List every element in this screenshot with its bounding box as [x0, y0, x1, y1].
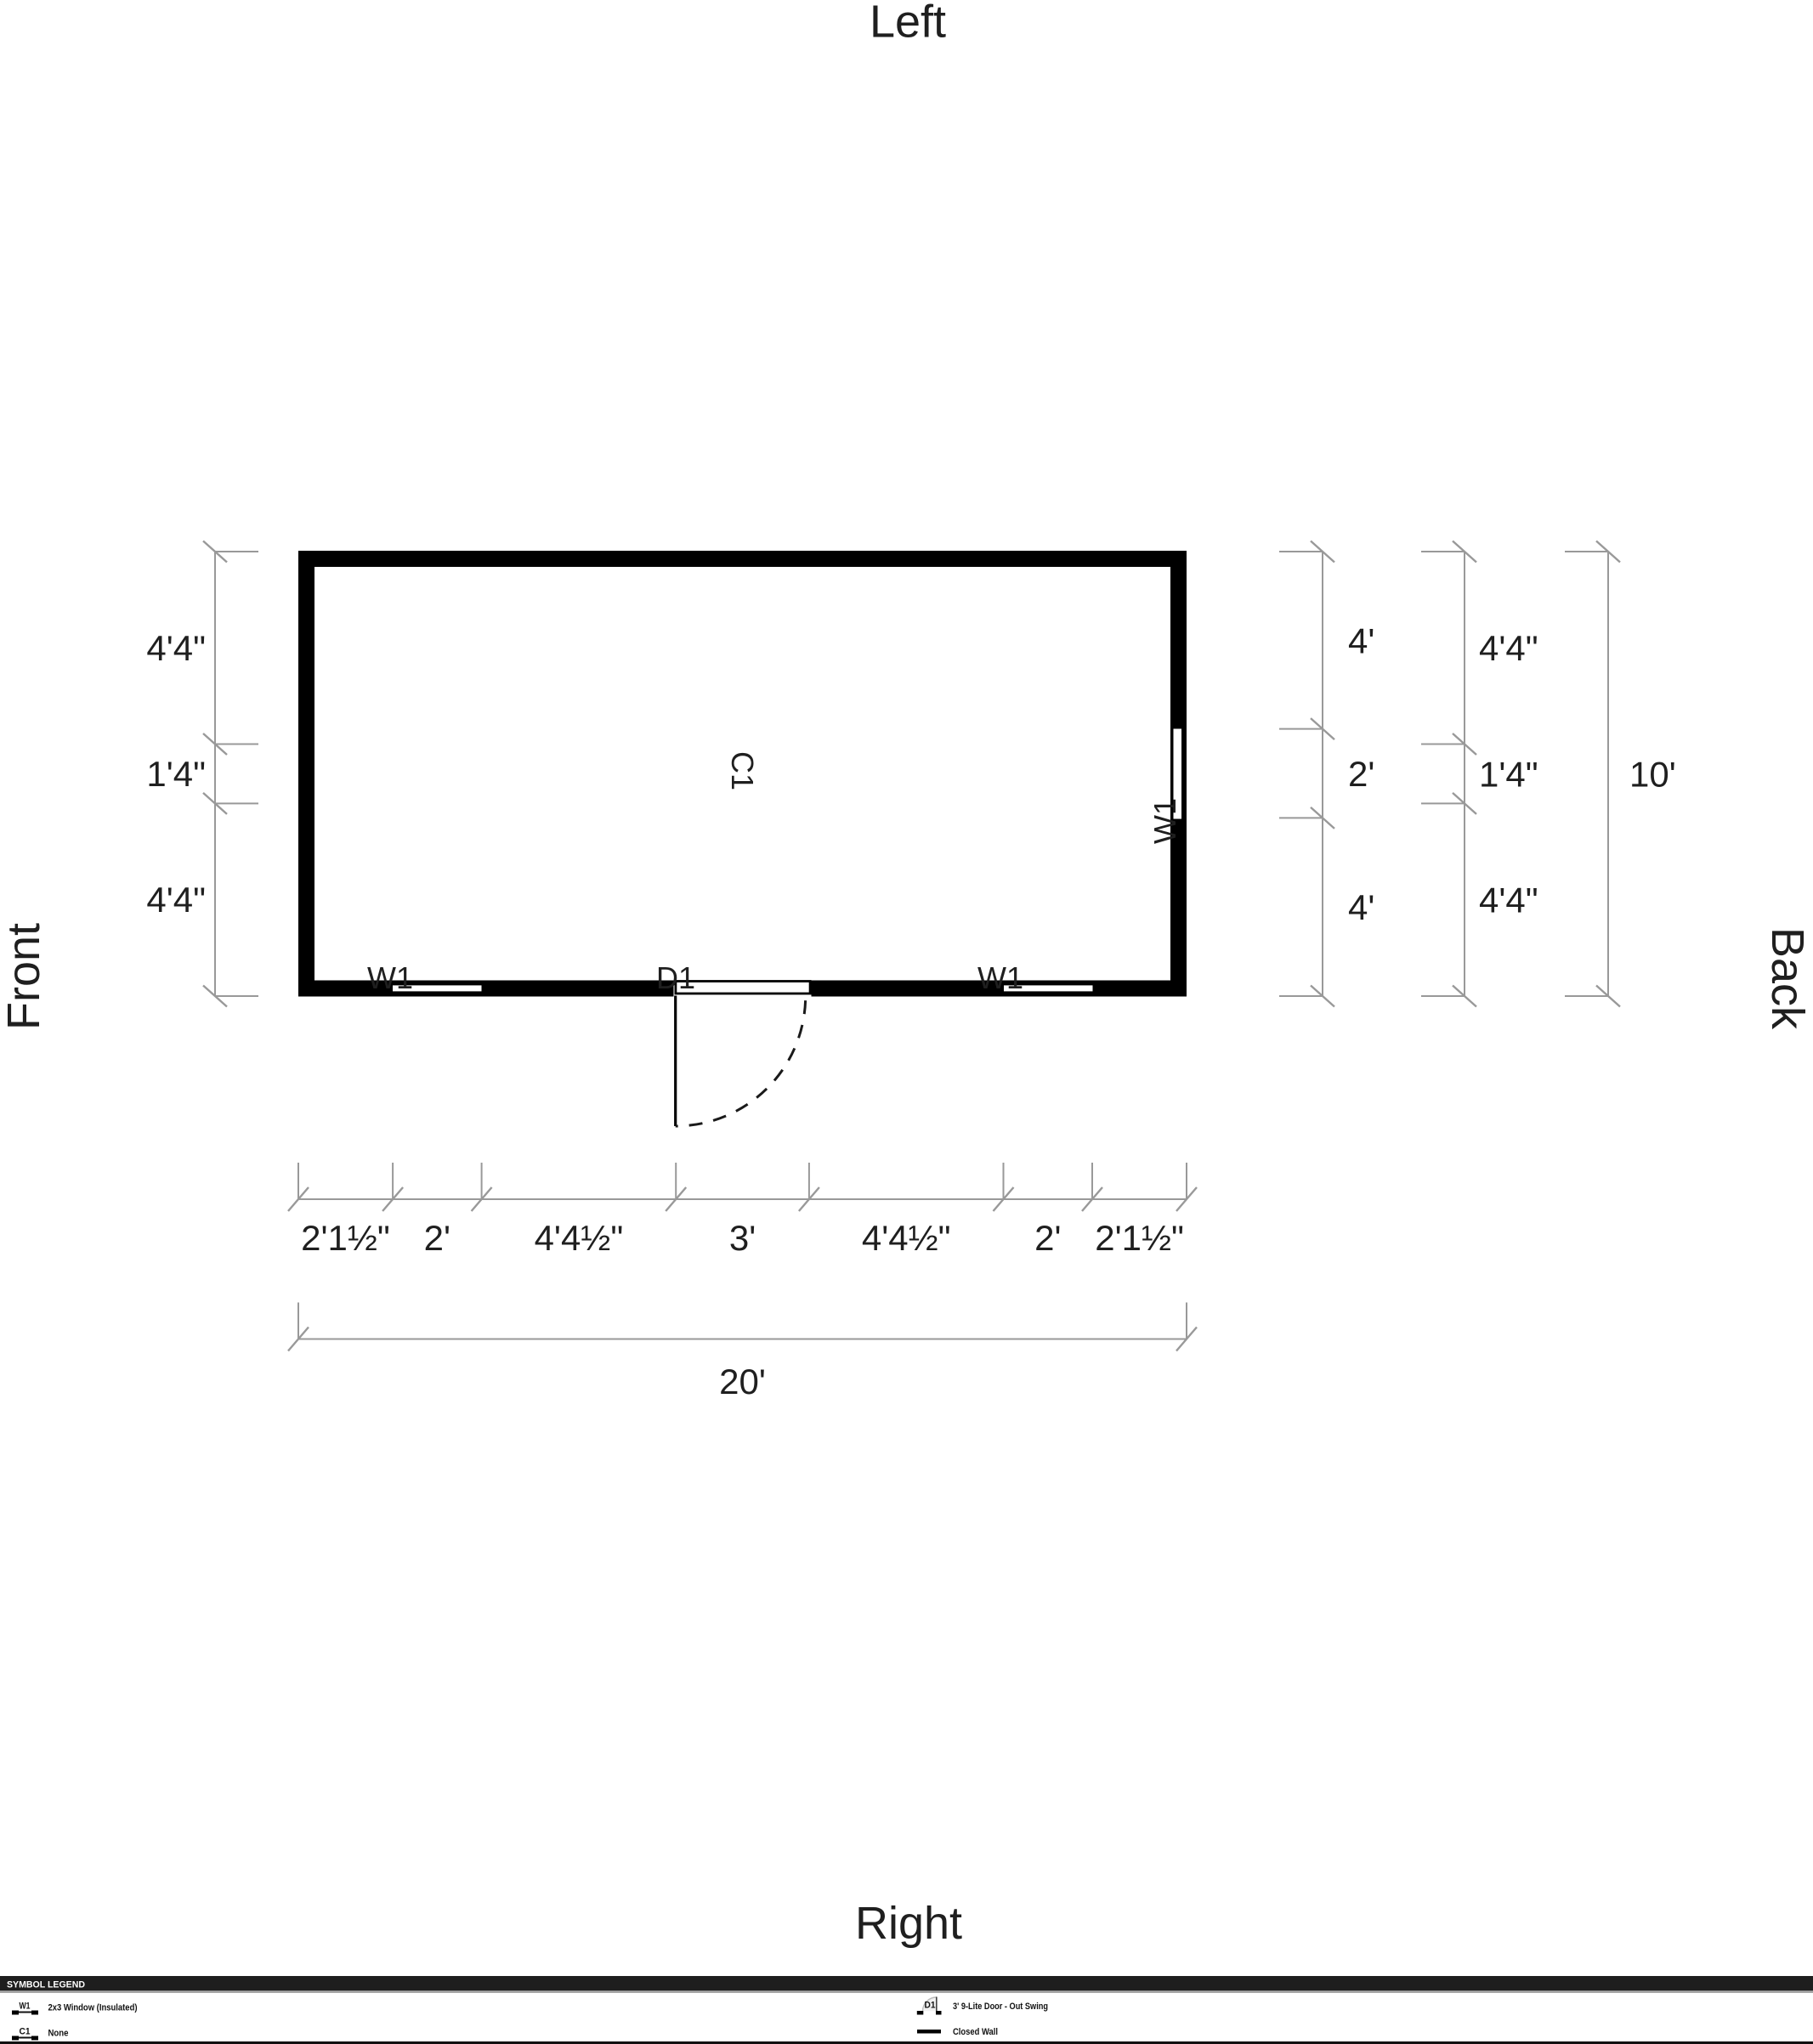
svg-text:1'4": 1'4" [146, 754, 206, 794]
svg-text:W1: W1 [367, 960, 413, 995]
svg-text:3': 3' [729, 1218, 756, 1258]
svg-text:D1: D1 [925, 2001, 936, 2011]
svg-text:None: None [48, 2029, 69, 2039]
svg-text:Right: Right [855, 1898, 962, 1949]
svg-text:20': 20' [719, 1362, 766, 1401]
svg-text:4'4": 4'4" [1479, 628, 1538, 668]
svg-text:2'1½": 2'1½" [301, 1218, 390, 1258]
svg-text:2'1½": 2'1½" [1095, 1218, 1184, 1258]
svg-text:4': 4' [1348, 620, 1374, 660]
svg-text:Back: Back [1762, 927, 1813, 1030]
svg-text:D1: D1 [656, 960, 695, 995]
svg-text:C1: C1 [725, 751, 760, 790]
svg-text:2': 2' [424, 1218, 450, 1258]
svg-text:W1: W1 [1147, 798, 1182, 844]
svg-text:3' 9-Lite Door - Out Swing: 3' 9-Lite Door - Out Swing [953, 2002, 1048, 2012]
svg-text:2': 2' [1348, 754, 1374, 794]
svg-text:1'4": 1'4" [1479, 754, 1538, 794]
svg-text:2': 2' [1034, 1218, 1061, 1258]
svg-text:2x3 Window (Insulated): 2x3 Window (Insulated) [48, 2003, 138, 2013]
svg-text:W1: W1 [977, 960, 1023, 995]
svg-text:Left: Left [870, 0, 946, 48]
svg-text:Front: Front [0, 923, 49, 1030]
svg-text:C1: C1 [20, 2027, 31, 2037]
svg-text:4'4": 4'4" [1479, 880, 1538, 920]
svg-text:4'4": 4'4" [146, 628, 206, 668]
svg-text:4'4½": 4'4½" [535, 1218, 624, 1258]
svg-text:SYMBOL LEGEND: SYMBOL LEGEND [7, 1980, 85, 1990]
svg-text:W1: W1 [20, 2002, 31, 2012]
svg-text:10': 10' [1629, 755, 1676, 795]
svg-text:Closed Wall: Closed Wall [953, 2027, 998, 2037]
svg-text:4'4": 4'4" [146, 880, 206, 920]
svg-text:4'4½": 4'4½" [862, 1218, 951, 1258]
svg-text:4': 4' [1348, 887, 1374, 927]
